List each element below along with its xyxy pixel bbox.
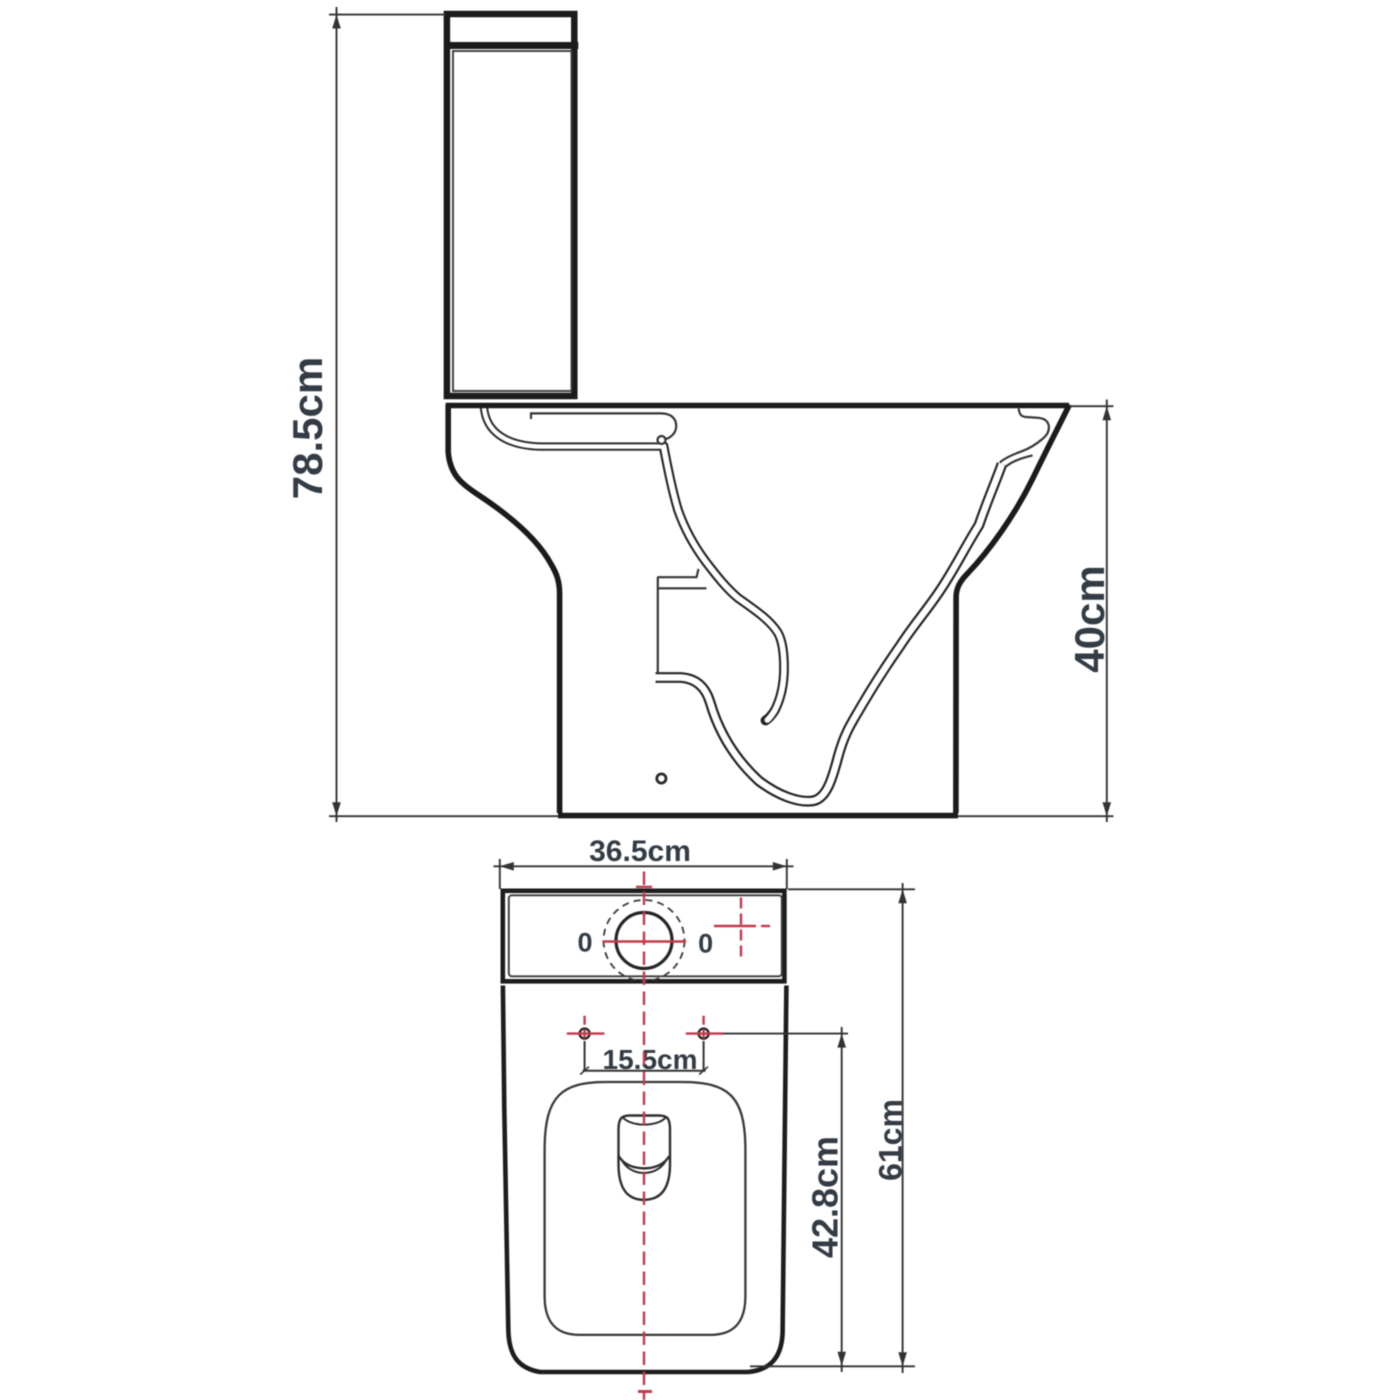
svg-text:61cm: 61cm (873, 1099, 909, 1181)
svg-text:15.5cm: 15.5cm (603, 1044, 698, 1075)
svg-text:0: 0 (577, 928, 592, 958)
svg-text:42.8cm: 42.8cm (805, 1136, 846, 1258)
svg-text:36.5cm: 36.5cm (589, 835, 691, 868)
svg-text:0: 0 (698, 929, 713, 959)
svg-text:40cm: 40cm (1066, 565, 1113, 672)
svg-text:78.5cm: 78.5cm (284, 357, 331, 499)
